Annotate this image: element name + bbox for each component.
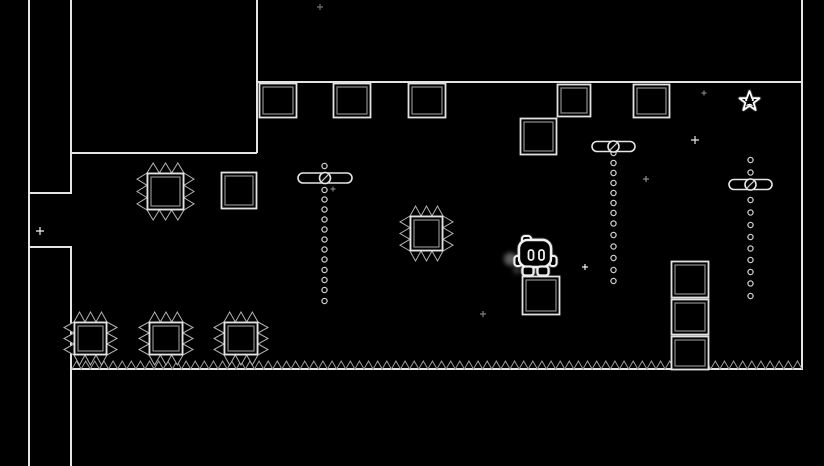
player-eye-left <box>529 250 534 260</box>
star-eye <box>745 99 747 101</box>
player-foot-right <box>538 267 549 276</box>
player-foot-left <box>523 267 534 276</box>
crate <box>260 84 297 118</box>
crate <box>521 119 557 155</box>
crate <box>672 300 709 335</box>
crate <box>222 173 257 209</box>
player-eye-right <box>539 250 544 260</box>
game-canvas[interactable] <box>0 0 824 466</box>
player-head <box>519 240 551 267</box>
crate <box>672 262 709 298</box>
crate <box>634 85 670 118</box>
crate <box>409 84 446 118</box>
crate <box>523 277 560 315</box>
star-eye <box>752 99 754 101</box>
crate <box>672 337 709 370</box>
game-stage <box>0 0 824 466</box>
crate <box>558 85 591 117</box>
crate <box>334 84 371 118</box>
